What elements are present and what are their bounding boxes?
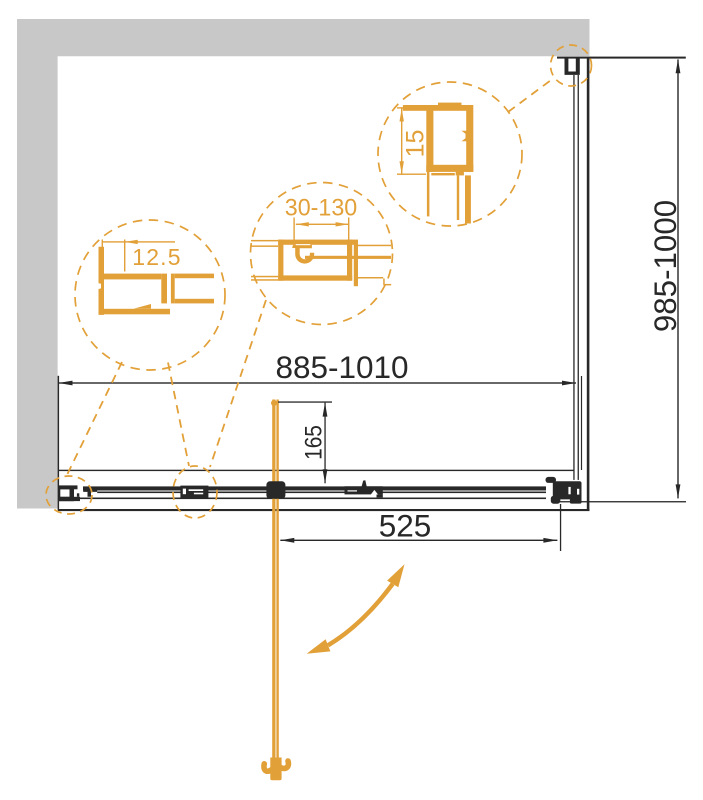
svg-text:885-1010: 885-1010 — [275, 349, 408, 385]
svg-text:985-1000: 985-1000 — [648, 200, 683, 332]
svg-text:525: 525 — [379, 507, 432, 543]
svg-text:30-130: 30-130 — [285, 194, 357, 222]
svg-text:15: 15 — [402, 130, 430, 158]
svg-text:12.5: 12.5 — [132, 244, 182, 270]
svg-text:165: 165 — [300, 425, 327, 460]
